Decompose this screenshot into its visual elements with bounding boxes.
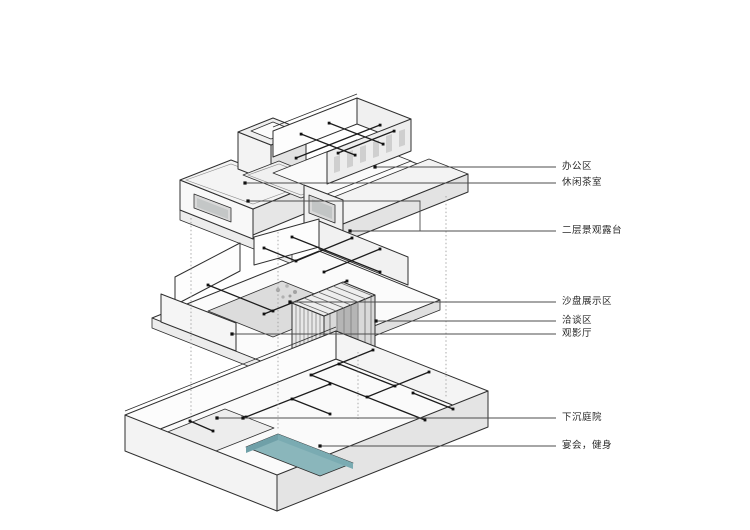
anchor-leisure-tea-room xyxy=(243,181,246,184)
axonometric-drawing xyxy=(0,0,750,530)
diagram-canvas: 办公区 休闲茶室 二层景观露台 沙盘展示区 洽谈区 观影厅 下沉庭院 宴会，健身 xyxy=(0,0,750,530)
anchor-screening-room xyxy=(230,332,233,335)
label-leisure-tea-room: 休闲茶室 xyxy=(562,177,602,189)
label-banquet-fitness: 宴会，健身 xyxy=(562,440,612,452)
anchor-banquet-fitness xyxy=(318,444,321,447)
label-sand-table-display-area: 沙盘展示区 xyxy=(562,296,612,308)
label-office-area: 办公区 xyxy=(562,161,592,173)
label-negotiation-area: 洽谈区 xyxy=(562,315,592,327)
anchor-terrace-roof xyxy=(246,199,249,202)
anchor-sunken-courtyard-b xyxy=(241,416,244,419)
anchor-sand-table xyxy=(288,300,291,303)
label-sunken-courtyard: 下沉庭院 xyxy=(562,412,602,424)
anchor-terrace-facade xyxy=(348,229,351,232)
anchor-sunken-courtyard-a xyxy=(215,416,218,419)
basement-group xyxy=(125,327,488,511)
label-screening-room: 观影厅 xyxy=(562,328,592,340)
anchor-negotiation-area xyxy=(374,319,377,322)
anchor-office-area xyxy=(373,165,376,168)
label-second-floor-landscape-terrace: 二层景观露台 xyxy=(562,225,622,237)
